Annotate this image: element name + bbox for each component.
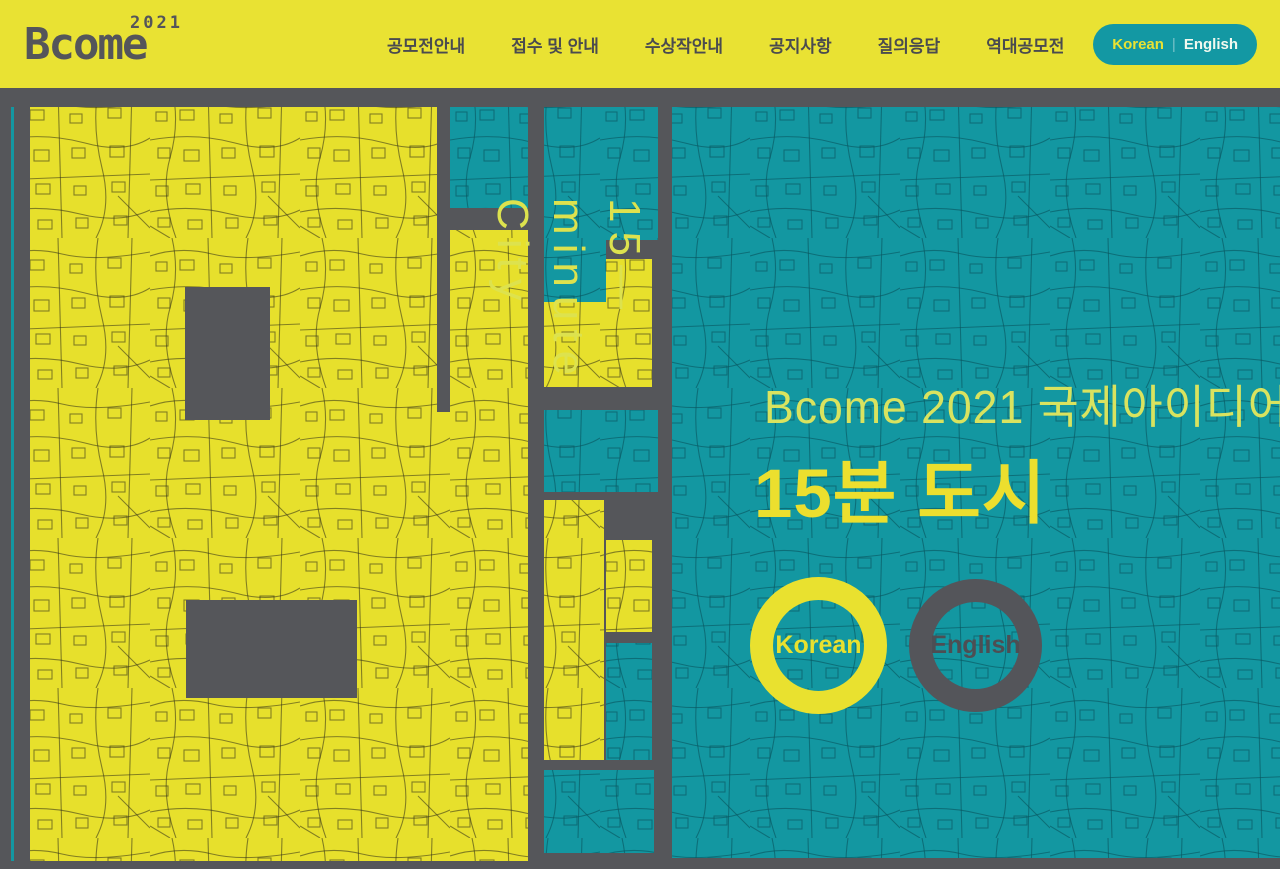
vertical-tagline-line3: City — [484, 198, 540, 558]
hero-title-line1: Bcome 2021 국제아이디어공모전 — [764, 371, 1280, 437]
hero-title-line2: 15분 도시 — [754, 437, 1046, 537]
vertical-tagline-line2: minute — [540, 198, 596, 558]
logo-name-text: Bcome — [24, 23, 146, 67]
korean-ring-label: Korean — [775, 631, 861, 660]
nav-item-past-contests[interactable]: 역대공모전 — [986, 32, 1064, 57]
nav-item-notice[interactable]: 공지사항 — [769, 32, 832, 57]
english-ring-label: English — [930, 631, 1020, 660]
header: 2021 Bcome 공모전안내 접수 및 안내 수상작안내 공지사항 질의응답… — [0, 0, 1280, 88]
korean-ring-button[interactable]: Korean — [750, 577, 887, 714]
main-nav: 공모전안내 접수 및 안내 수상작안내 공지사항 질의응답 역대공모전 — [387, 32, 1064, 57]
logo[interactable]: 2021 Bcome — [24, 7, 199, 81]
language-toggle-button[interactable]: Korean | English — [1093, 24, 1257, 65]
hero-banner: 15— minute City Bcome 2021 국제아이디어공모전 15분… — [0, 88, 1280, 869]
lang-separator: | — [1172, 36, 1176, 53]
nav-item-contest-info[interactable]: 공모전안내 — [387, 32, 465, 57]
nav-item-submission[interactable]: 접수 및 안내 — [511, 32, 599, 57]
nav-item-winners[interactable]: 수상작안내 — [645, 32, 723, 57]
vertical-tagline-line1: 15— — [596, 198, 652, 558]
lang-korean-link[interactable]: Korean — [1112, 36, 1164, 53]
english-ring-button[interactable]: English — [909, 579, 1042, 712]
vertical-tagline: 15— minute City — [484, 198, 652, 558]
nav-item-qna[interactable]: 질의응답 — [878, 32, 941, 57]
lang-english-link[interactable]: English — [1184, 36, 1238, 53]
